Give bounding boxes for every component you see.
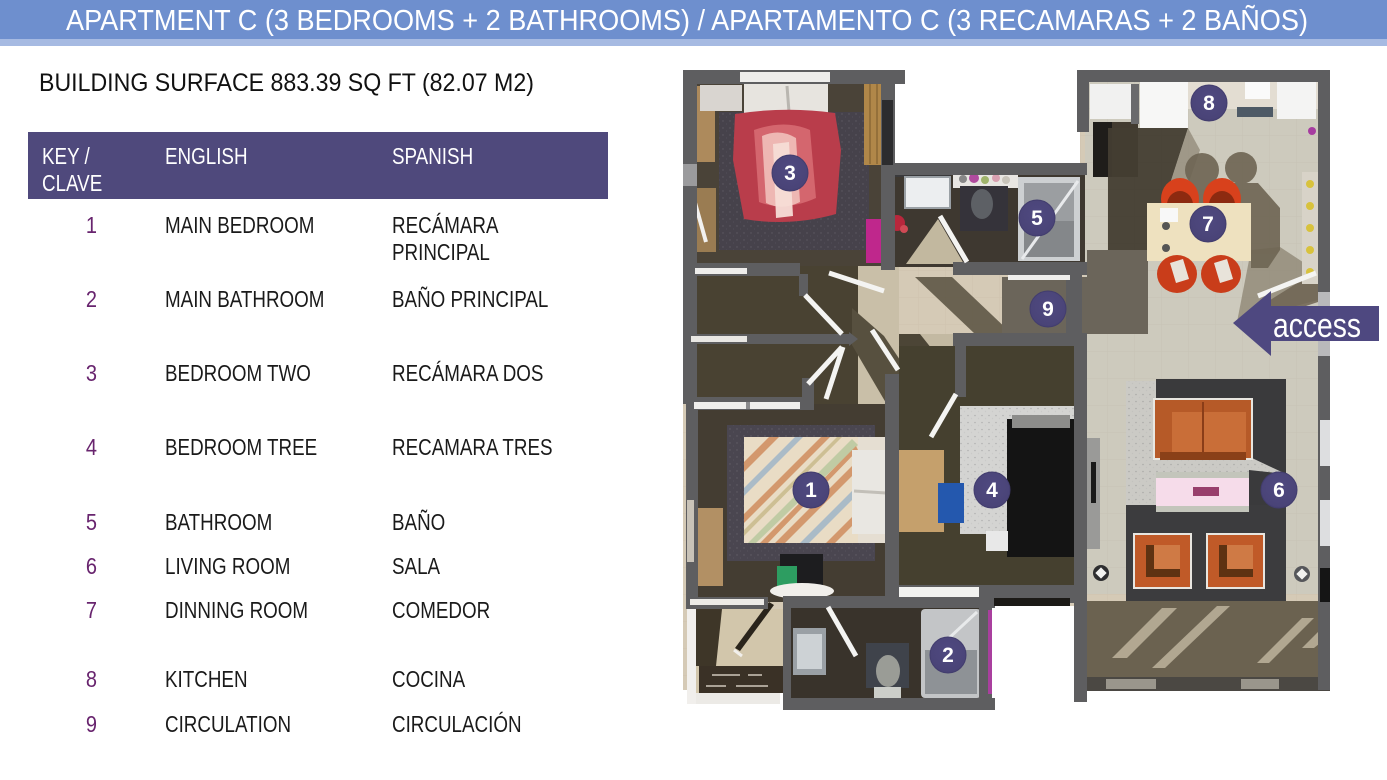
svg-text:access: access: [1273, 307, 1361, 345]
svg-text:2: 2: [942, 644, 954, 667]
svg-text:5: 5: [1031, 207, 1043, 230]
svg-text:9: 9: [1042, 298, 1054, 321]
svg-text:7: 7: [1202, 213, 1214, 236]
svg-text:4: 4: [986, 479, 998, 502]
svg-text:3: 3: [784, 162, 796, 185]
svg-text:6: 6: [1273, 479, 1285, 502]
svg-text:1: 1: [805, 479, 817, 502]
svg-text:8: 8: [1203, 92, 1215, 115]
